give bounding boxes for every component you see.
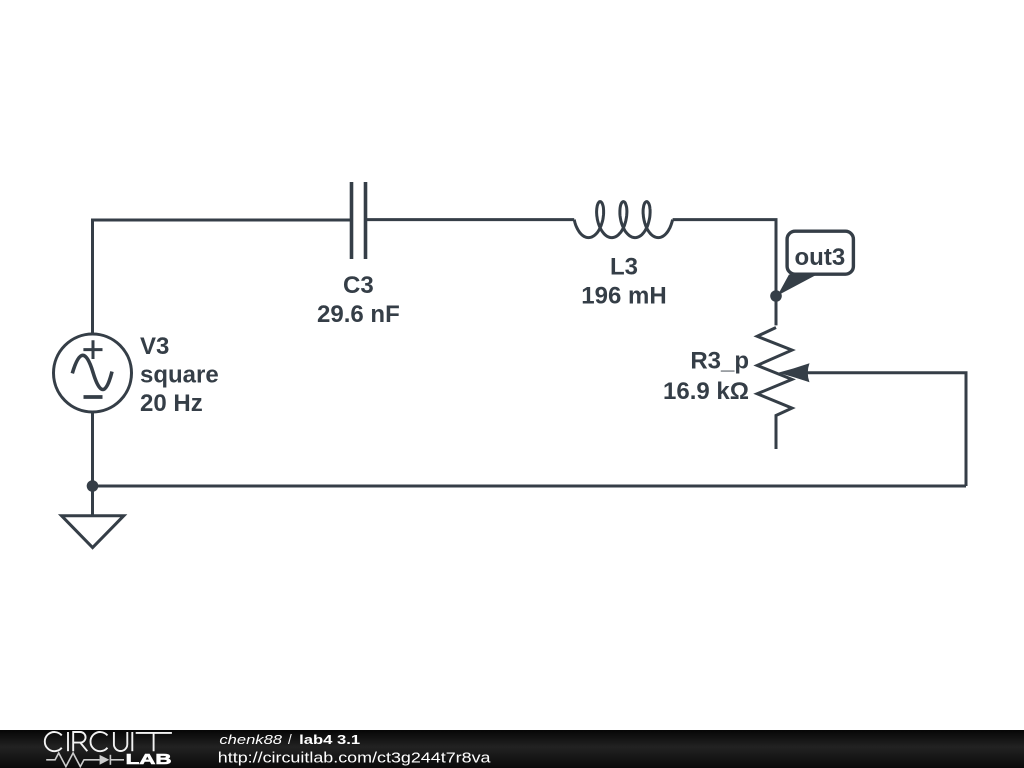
svg-text:16.9 kΩ: 16.9 kΩ bbox=[663, 378, 749, 405]
svg-text:C3: C3 bbox=[343, 272, 374, 299]
svg-text:R3_p: R3_p bbox=[690, 348, 749, 375]
svg-text:chenk88: chenk88 bbox=[219, 732, 283, 747]
svg-text:http://circuitlab.com/ct3g244t: http://circuitlab.com/ct3g244t7r8va bbox=[218, 750, 491, 767]
svg-text:20 Hz: 20 Hz bbox=[140, 390, 203, 417]
svg-text:L3: L3 bbox=[610, 254, 638, 281]
svg-text:V3: V3 bbox=[140, 333, 169, 360]
svg-text:29.6 nF: 29.6 nF bbox=[317, 301, 400, 328]
svg-text:lab4 3.1: lab4 3.1 bbox=[299, 732, 360, 747]
svg-text:/: / bbox=[288, 732, 292, 747]
svg-text:LAB: LAB bbox=[126, 752, 172, 768]
svg-text:out3: out3 bbox=[795, 244, 846, 271]
svg-text:square: square bbox=[140, 362, 219, 389]
svg-text:196 mH: 196 mH bbox=[581, 282, 666, 309]
